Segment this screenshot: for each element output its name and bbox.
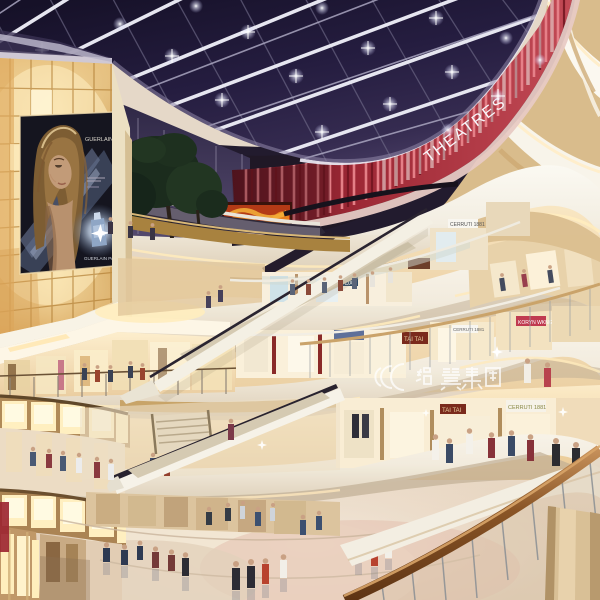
svg-text:TAI TAI: TAI TAI [442, 408, 462, 414]
svg-text:CERRUTI 1881: CERRUTI 1881 [450, 222, 485, 228]
svg-text:KORYN WKNG: KORYN WKNG [518, 320, 553, 326]
svg-text:GUERLAIN: GUERLAIN [85, 137, 113, 143]
svg-text:CERRUTI 1881: CERRUTI 1881 [508, 405, 546, 411]
svg-text:CERRUTI 1881: CERRUTI 1881 [453, 327, 485, 332]
svg-text:TAI TAI: TAI TAI [404, 337, 424, 343]
